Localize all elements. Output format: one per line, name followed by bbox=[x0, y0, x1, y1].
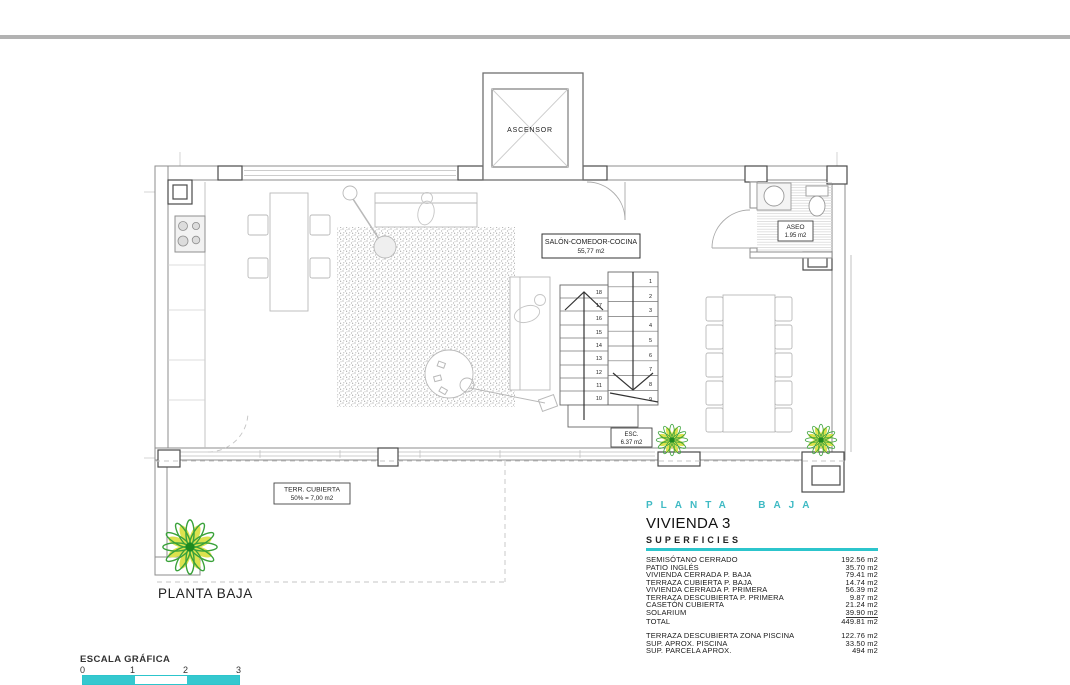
row-value: 449.81 m2 bbox=[841, 618, 878, 626]
stairs: 1 2 3 4 5 6 7 8 9 18 17 16 15 14 13 12 1… bbox=[560, 272, 658, 427]
ascensor-label: ASCENSOR bbox=[507, 127, 553, 134]
row-value: 494 m2 bbox=[852, 647, 878, 655]
svg-text:4: 4 bbox=[649, 323, 652, 329]
sofa-right bbox=[510, 277, 550, 390]
dining-table-and-chairs bbox=[706, 295, 792, 432]
scale-segment-filled bbox=[187, 676, 239, 684]
table-row: SUP. PARCELA APROX. 494 m2 bbox=[646, 647, 878, 655]
salon-label-box: SALÓN-COMEDOR-COCINA 55,77 m2 bbox=[542, 234, 640, 258]
row-label: TOTAL bbox=[646, 618, 670, 626]
sink-icon bbox=[757, 183, 791, 210]
bathroom-aseo bbox=[712, 182, 832, 258]
scale-bar-segments bbox=[82, 675, 240, 685]
terraza-label-box: TERR. CUBIERTA 50% = 7,00 m2 bbox=[274, 483, 350, 504]
scale-tick: 0 bbox=[80, 665, 85, 675]
scale-tick: 2 bbox=[183, 665, 188, 675]
area-table: SEMISÓTANO CERRADO 192.56 m2 PATIO INGLÉ… bbox=[646, 556, 878, 655]
elevator-ascensor: ASCENSOR bbox=[483, 73, 583, 180]
panel-floor-header: PLANTA BAJA bbox=[646, 500, 880, 511]
stove-icon bbox=[175, 216, 205, 252]
svg-text:3: 3 bbox=[649, 308, 652, 314]
scale-segment-empty bbox=[135, 676, 187, 684]
salon-label: SALÓN-COMEDOR-COCINA bbox=[545, 237, 638, 246]
svg-text:10: 10 bbox=[596, 396, 602, 402]
terraza-label: TERR. CUBIERTA bbox=[284, 487, 340, 494]
esc-label-box: ESC. 6.37 m2 bbox=[611, 428, 652, 447]
scale-tick: 1 bbox=[130, 665, 135, 675]
floor-plan-drawing: ASCENSOR bbox=[0, 0, 1070, 682]
svg-text:14: 14 bbox=[596, 343, 602, 349]
esc-label: ESC. bbox=[624, 432, 638, 438]
svg-text:18: 18 bbox=[596, 290, 602, 296]
superficies-panel: PLANTA BAJA VIVIENDA 3 SUPERFICIES SEMIS… bbox=[646, 500, 880, 655]
svg-text:11: 11 bbox=[596, 383, 602, 389]
esc-area: 6.37 m2 bbox=[621, 440, 643, 446]
kitchen bbox=[168, 182, 330, 448]
scale-tick: 3 bbox=[236, 665, 241, 675]
salon-door bbox=[587, 182, 625, 220]
svg-text:9: 9 bbox=[649, 397, 652, 403]
svg-text:12: 12 bbox=[596, 370, 602, 376]
bathroom-door-arc bbox=[712, 210, 750, 248]
scale-segment-filled bbox=[83, 676, 135, 684]
svg-text:1: 1 bbox=[649, 279, 652, 285]
svg-text:15: 15 bbox=[596, 330, 602, 336]
aseo-label-box: ASEO 1.95 m2 bbox=[778, 221, 813, 241]
sofa-top bbox=[375, 193, 477, 227]
aseo-label: ASEO bbox=[786, 224, 804, 231]
svg-text:5: 5 bbox=[649, 338, 652, 344]
panel-teal-rule bbox=[646, 548, 878, 551]
svg-text:2: 2 bbox=[649, 294, 652, 300]
table-row: TOTAL 449.81 m2 bbox=[646, 618, 878, 626]
svg-text:16: 16 bbox=[596, 316, 602, 322]
living-room bbox=[337, 186, 558, 411]
svg-text:17: 17 bbox=[596, 303, 602, 309]
graphic-scale: ESCALA GRÁFICA 0 1 2 3 bbox=[80, 654, 250, 685]
aseo-area: 1.95 m2 bbox=[785, 233, 807, 239]
svg-text:8: 8 bbox=[649, 382, 652, 388]
scale-ticks: 0 1 2 3 bbox=[80, 665, 250, 675]
terraza-area: 50% = 7,00 m2 bbox=[291, 495, 334, 502]
kitchen-table-and-stools bbox=[248, 193, 330, 311]
panel-subtitle: SUPERFICIES bbox=[646, 535, 880, 545]
row-label: SUP. PARCELA APROX. bbox=[646, 647, 732, 655]
plan-floor-title: PLANTA BAJA bbox=[158, 586, 253, 601]
salon-area: 55,77 m2 bbox=[577, 248, 604, 255]
scale-title: ESCALA GRÁFICA bbox=[80, 654, 250, 665]
svg-text:6: 6 bbox=[649, 353, 652, 359]
svg-text:13: 13 bbox=[596, 356, 602, 362]
svg-text:7: 7 bbox=[649, 367, 652, 373]
panel-dwelling-title: VIVIENDA 3 bbox=[646, 515, 880, 532]
